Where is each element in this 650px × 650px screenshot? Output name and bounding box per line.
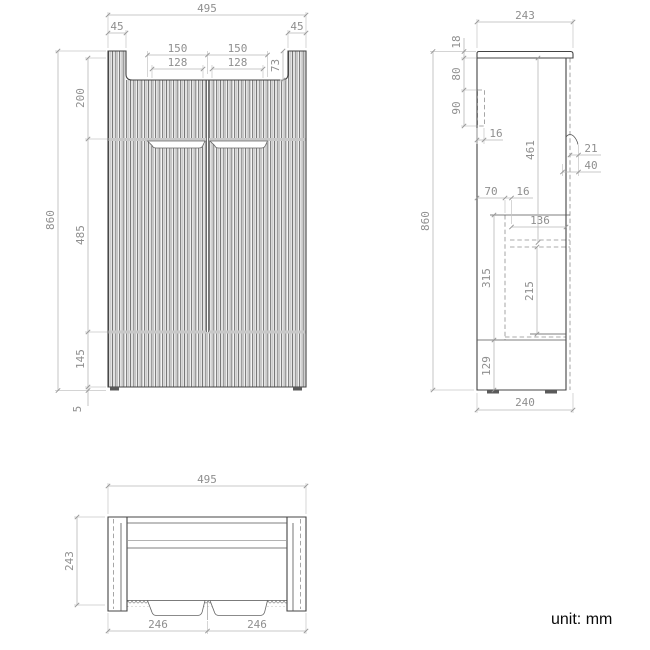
flute-texture-right-post bbox=[288, 52, 306, 388]
dim-label-front-height: 860 bbox=[44, 210, 57, 230]
dim-label-door-left: 246 bbox=[148, 618, 168, 631]
side-top-panel bbox=[477, 52, 573, 59]
dim-label-groove-inner-left: 128 bbox=[168, 56, 188, 69]
dim-label-panel-thickness: 16 bbox=[516, 185, 529, 198]
bottom-view: 495 243 246 246 bbox=[63, 473, 308, 634]
bottom-hidden-panel-lines bbox=[114, 519, 301, 609]
hidden-bracket bbox=[478, 90, 485, 126]
technical-drawing-page: 495 45 45 150 150 128 128 73 860 200 485… bbox=[0, 0, 650, 650]
bottom-view-outline bbox=[108, 517, 306, 611]
side-view: 243 18 80 90 16 461 21 40 860 70 16 136 … bbox=[419, 9, 601, 413]
front-foot-left bbox=[110, 387, 119, 391]
hidden-drawer-lines bbox=[505, 215, 570, 340]
dim-label-floor-gap: 5 bbox=[71, 406, 84, 413]
dim-label-bracket-height: 90 bbox=[450, 101, 463, 114]
dim-label-bottom-width: 495 bbox=[197, 473, 217, 486]
dim-label-door-height: 461 bbox=[524, 140, 537, 160]
vanity-cabinet-drawing: 495 45 45 150 150 128 128 73 860 200 485… bbox=[0, 0, 650, 650]
flute-texture-left-post bbox=[109, 52, 127, 388]
dim-label-door-right: 246 bbox=[247, 618, 267, 631]
dim-label-drawer-height: 215 bbox=[523, 281, 536, 301]
handle-groove-left bbox=[148, 141, 206, 148]
front-view: 495 45 45 150 150 128 128 73 860 200 485… bbox=[44, 2, 308, 412]
unit-note: unit: mm bbox=[551, 611, 612, 628]
dim-label-bracket-depth: 16 bbox=[489, 127, 502, 140]
dim-label-lower-section: 145 bbox=[74, 349, 87, 369]
dim-label-handle-recess: 40 bbox=[584, 159, 597, 172]
dim-label-upper-section: 200 bbox=[74, 88, 87, 108]
bottom-post-inner-lines bbox=[121, 523, 293, 611]
dim-label-inner-depth: 136 bbox=[530, 214, 550, 227]
dim-label-base-height: 129 bbox=[480, 356, 493, 376]
front-foot-right bbox=[293, 387, 302, 391]
dim-label-top-recess: 73 bbox=[269, 59, 282, 72]
dim-label-side-panel-right: 45 bbox=[290, 20, 303, 33]
dim-label-upper-offset: 80 bbox=[450, 67, 463, 80]
bottom-handle-groove-left bbox=[148, 601, 206, 616]
dim-label-middle-section: 485 bbox=[74, 225, 87, 245]
back-rail-lines bbox=[127, 523, 287, 548]
handle-groove-right bbox=[210, 141, 268, 148]
dim-label-top-panel: 18 bbox=[450, 35, 463, 48]
dim-label-front-overall-width: 495 bbox=[197, 2, 217, 15]
dim-label-shelf-offset: 70 bbox=[484, 185, 497, 198]
dim-label-side-panel-left: 45 bbox=[110, 20, 123, 33]
dim-label-base-depth: 240 bbox=[515, 396, 535, 409]
dim-label-groove-outer-left: 150 bbox=[168, 42, 188, 55]
dim-label-drawer-space: 315 bbox=[480, 268, 493, 288]
dim-label-overall-depth: 243 bbox=[515, 9, 535, 22]
dim-label-side-height: 860 bbox=[419, 211, 432, 231]
side-foot-front bbox=[545, 390, 557, 394]
dim-label-bottom-depth: 243 bbox=[63, 551, 76, 571]
dim-label-handle-lip: 21 bbox=[584, 142, 597, 155]
dim-label-groove-outer-right: 150 bbox=[228, 42, 248, 55]
bottom-handle-groove-right bbox=[210, 601, 268, 616]
dim-label-groove-inner-right: 128 bbox=[228, 56, 248, 69]
side-handle-lip bbox=[566, 134, 578, 144]
